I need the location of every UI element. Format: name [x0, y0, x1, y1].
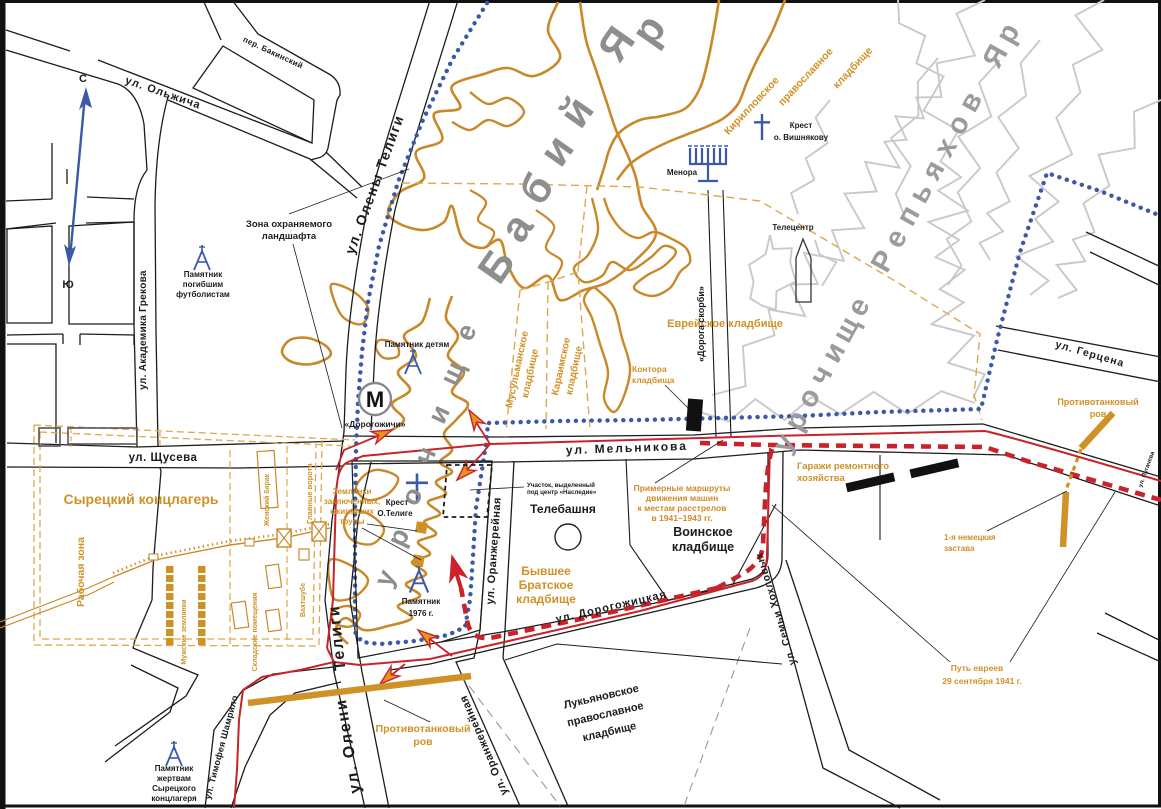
svg-text:Телецентр: Телецентр	[772, 223, 813, 232]
svg-text:Памятник: Памятник	[184, 270, 223, 279]
svg-text:Противотанковый: Противотанковый	[376, 723, 471, 735]
svg-text:ландшафта: ландшафта	[262, 231, 317, 242]
svg-text:Складские помещения: Складские помещения	[252, 593, 259, 672]
svg-text:ров: ров	[1090, 409, 1107, 419]
svg-text:движения машин: движения машин	[646, 493, 719, 503]
svg-text:Главные ворота: Главные ворота	[305, 463, 314, 524]
svg-text:О.Телиге: О.Телиге	[377, 509, 413, 518]
svg-text:1976 г.: 1976 г.	[409, 609, 434, 618]
svg-text:концлагеря: концлагеря	[151, 794, 197, 803]
svg-text:Противотанковый: Противотанковый	[1057, 397, 1138, 407]
svg-text:Вахтшубе: Вахтшубе	[299, 583, 307, 617]
svg-text:Сырецкого: Сырецкого	[152, 784, 196, 793]
svg-text:С: С	[79, 73, 87, 85]
svg-text:Менора: Менора	[667, 168, 698, 177]
svg-text:Гаражи ремонтного: Гаражи ремонтного	[797, 461, 889, 472]
svg-text:М: М	[366, 387, 384, 412]
svg-text:хозяйства: хозяйства	[797, 473, 845, 484]
svg-text:Памятник детям: Памятник детям	[385, 340, 450, 349]
svg-text:Ю: Ю	[62, 279, 73, 291]
svg-text:кладбища: кладбища	[632, 375, 675, 385]
svg-text:Участок, выделенный: Участок, выделенный	[527, 482, 595, 489]
svg-text:сжигавших: сжигавших	[330, 507, 374, 516]
svg-text:жертвам: жертвам	[156, 774, 191, 783]
svg-text:Землянки: Землянки	[333, 487, 372, 496]
svg-text:футболистам: футболистам	[176, 290, 230, 299]
svg-text:погибшим: погибшим	[183, 280, 223, 289]
svg-text:кладбище: кладбище	[672, 540, 734, 554]
svg-text:Воинское: Воинское	[673, 525, 733, 539]
svg-text:ров: ров	[413, 736, 433, 748]
svg-text:Бывшее: Бывшее	[521, 564, 571, 578]
svg-text:«Дорогожичи»: «Дорогожичи»	[344, 419, 405, 429]
svg-text:Памятник: Памятник	[155, 764, 194, 773]
svg-text:Братское: Братское	[519, 578, 574, 592]
svg-text:кладбище: кладбище	[516, 592, 576, 606]
svg-text:«Дорога скорби»: «Дорога скорби»	[696, 286, 706, 362]
svg-text:Еврейское кладбище: Еврейское кладбище	[667, 318, 783, 330]
svg-text:в 1941–1943 гг.: в 1941–1943 гг.	[651, 513, 712, 523]
svg-text:застава: застава	[944, 544, 975, 553]
svg-text:Крест: Крест	[790, 121, 813, 130]
svg-text:Крест: Крест	[386, 498, 409, 507]
svg-text:Рабочая зона: Рабочая зона	[75, 537, 87, 607]
svg-text:1-я немецкая: 1-я немецкая	[944, 533, 996, 542]
svg-text:29 сентября 1941 г.: 29 сентября 1941 г.	[942, 676, 1022, 686]
svg-text:Контора: Контора	[632, 364, 667, 374]
svg-text:Примерные маршруты: Примерные маршруты	[634, 483, 731, 493]
svg-text:Сырецкий концлагерь: Сырецкий концлагерь	[63, 491, 218, 507]
svg-text:ул. Щусева: ул. Щусева	[129, 452, 198, 464]
svg-text:Зона охраняемого: Зона охраняемого	[246, 219, 332, 230]
svg-text:Памятник: Памятник	[402, 597, 441, 606]
svg-text:к местам расстрелов: к местам расстрелов	[638, 503, 727, 513]
svg-text:Телебашня: Телебашня	[530, 502, 596, 516]
svg-text:Путь евреев: Путь евреев	[951, 663, 1004, 673]
svg-text:о. Вишнякову: о. Вишнякову	[774, 133, 829, 142]
svg-text:ул. Академика Грекова: ул. Академика Грекова	[138, 270, 149, 390]
svg-text:трупы: трупы	[340, 517, 365, 526]
svg-text:Мужские землянки: Мужские землянки	[181, 599, 188, 664]
svg-text:под центр «Наследие»: под центр «Наследие»	[527, 489, 597, 496]
svg-text:заключенных,: заключенных,	[324, 497, 380, 506]
svg-text:Женский барак: Женский барак	[263, 473, 271, 527]
